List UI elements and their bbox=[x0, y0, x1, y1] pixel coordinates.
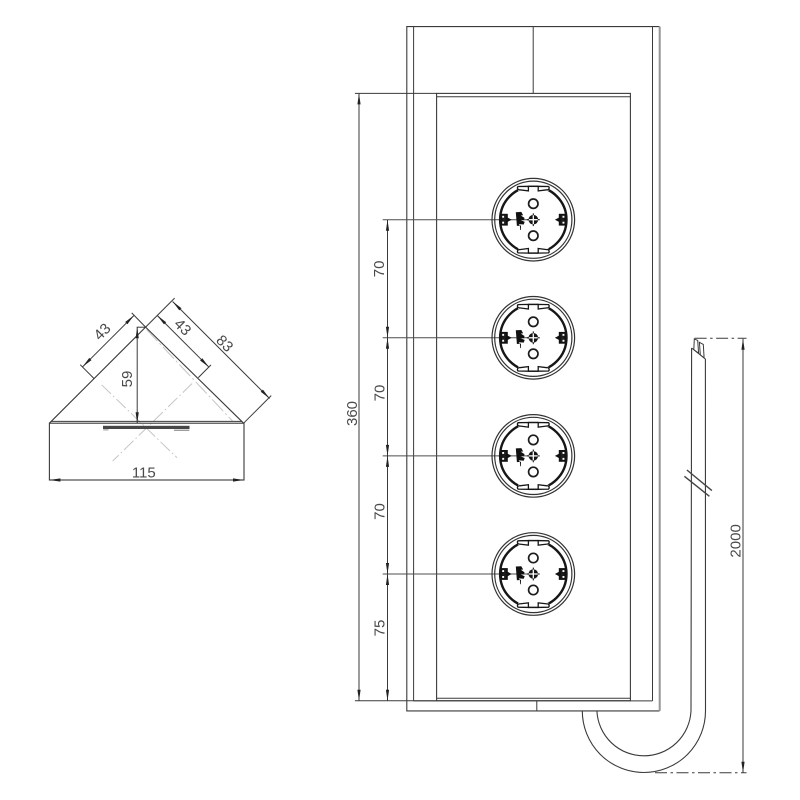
svg-text:75: 75 bbox=[371, 620, 388, 637]
svg-text:83: 83 bbox=[212, 332, 236, 356]
svg-text:115: 115 bbox=[132, 464, 156, 481]
svg-text:360: 360 bbox=[344, 401, 361, 426]
svg-text:59: 59 bbox=[119, 371, 136, 388]
svg-text:43: 43 bbox=[91, 320, 115, 344]
svg-text:70: 70 bbox=[371, 503, 388, 520]
svg-text:2000: 2000 bbox=[728, 524, 745, 557]
svg-text:70: 70 bbox=[371, 261, 388, 278]
svg-text:70: 70 bbox=[372, 385, 389, 402]
